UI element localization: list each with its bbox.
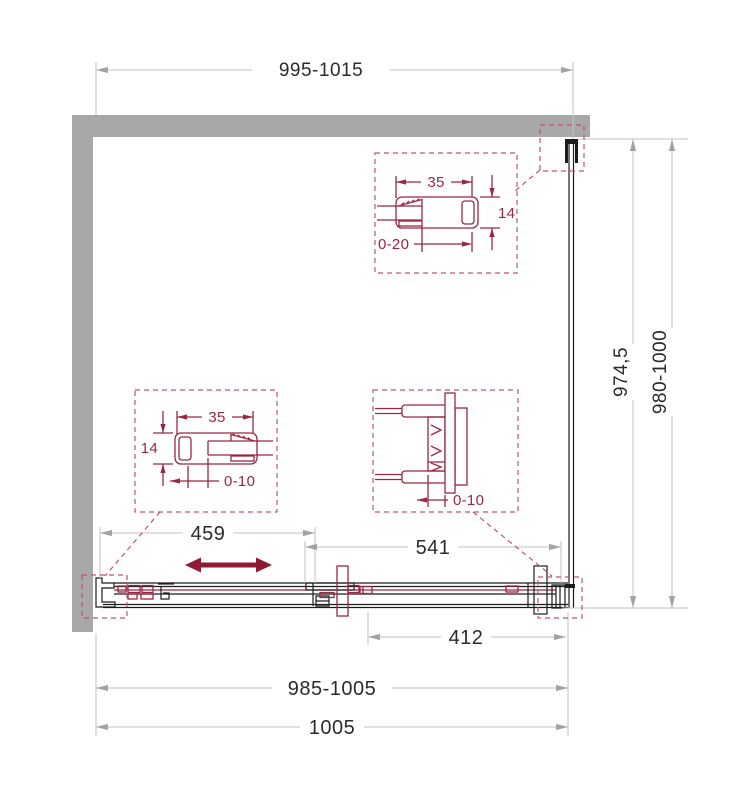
wall-left [72,137,93,632]
dim-label-right-outer: 980-1000 [650,330,671,414]
detail-label-depth: 0-20 [378,236,409,253]
detail-top-right-wall-profile: 35 14 0-20 [375,153,517,273]
dimension-fixed-width: 541 [305,537,561,583]
leader-left [105,512,160,576]
dimension-right-heights: 974,5 980-1000 [562,139,688,608]
detail-label-depth: 0-10 [453,492,484,509]
left-wall-profile [96,578,115,607]
detail-label-height: 14 [498,205,515,222]
detail-mid-right-overlap-profile: 0-10 [373,390,518,512]
slide-direction-arrow [185,558,272,573]
dimension-bottom-widths: 985-1005 1005 [96,612,568,739]
dimension-door-opening: 459 [100,523,315,583]
center-roller-assembly [306,566,518,616]
roller-bracket [337,566,348,616]
wall-top [72,115,590,137]
drawing-canvas: 995-1015 974,5 980-1000 459 541 [0,0,753,800]
detail-label-width: 35 [208,409,225,426]
wall-profile-top-bracket [565,139,578,163]
dim-label-right-inner: 974,5 [611,347,632,397]
fixed-glass-panel [565,139,578,584]
dim-label-door-opening: 459 [191,523,226,545]
detail-label-width: 35 [427,174,444,191]
detail-label-depth: 0-10 [224,473,255,490]
dim-label-overlap: 412 [449,627,484,649]
detail-label-height: 14 [141,440,158,457]
dimension-overlap: 412 [368,612,566,649]
walls [72,115,590,632]
shower-enclosure-technical-drawing: 995-1015 974,5 980-1000 459 541 [0,0,753,800]
dim-label-fixed-width: 541 [416,537,451,559]
leader-top [515,170,540,191]
dim-label-top-width: 995-1015 [279,60,363,81]
dim-label-bottom-total: 1005 [309,717,356,739]
dim-label-bottom-adjust: 985-1005 [288,678,377,700]
detail-mid-left-wall-profile: 35 14 0-10 [135,390,277,512]
door-track-assembly [96,566,575,616]
